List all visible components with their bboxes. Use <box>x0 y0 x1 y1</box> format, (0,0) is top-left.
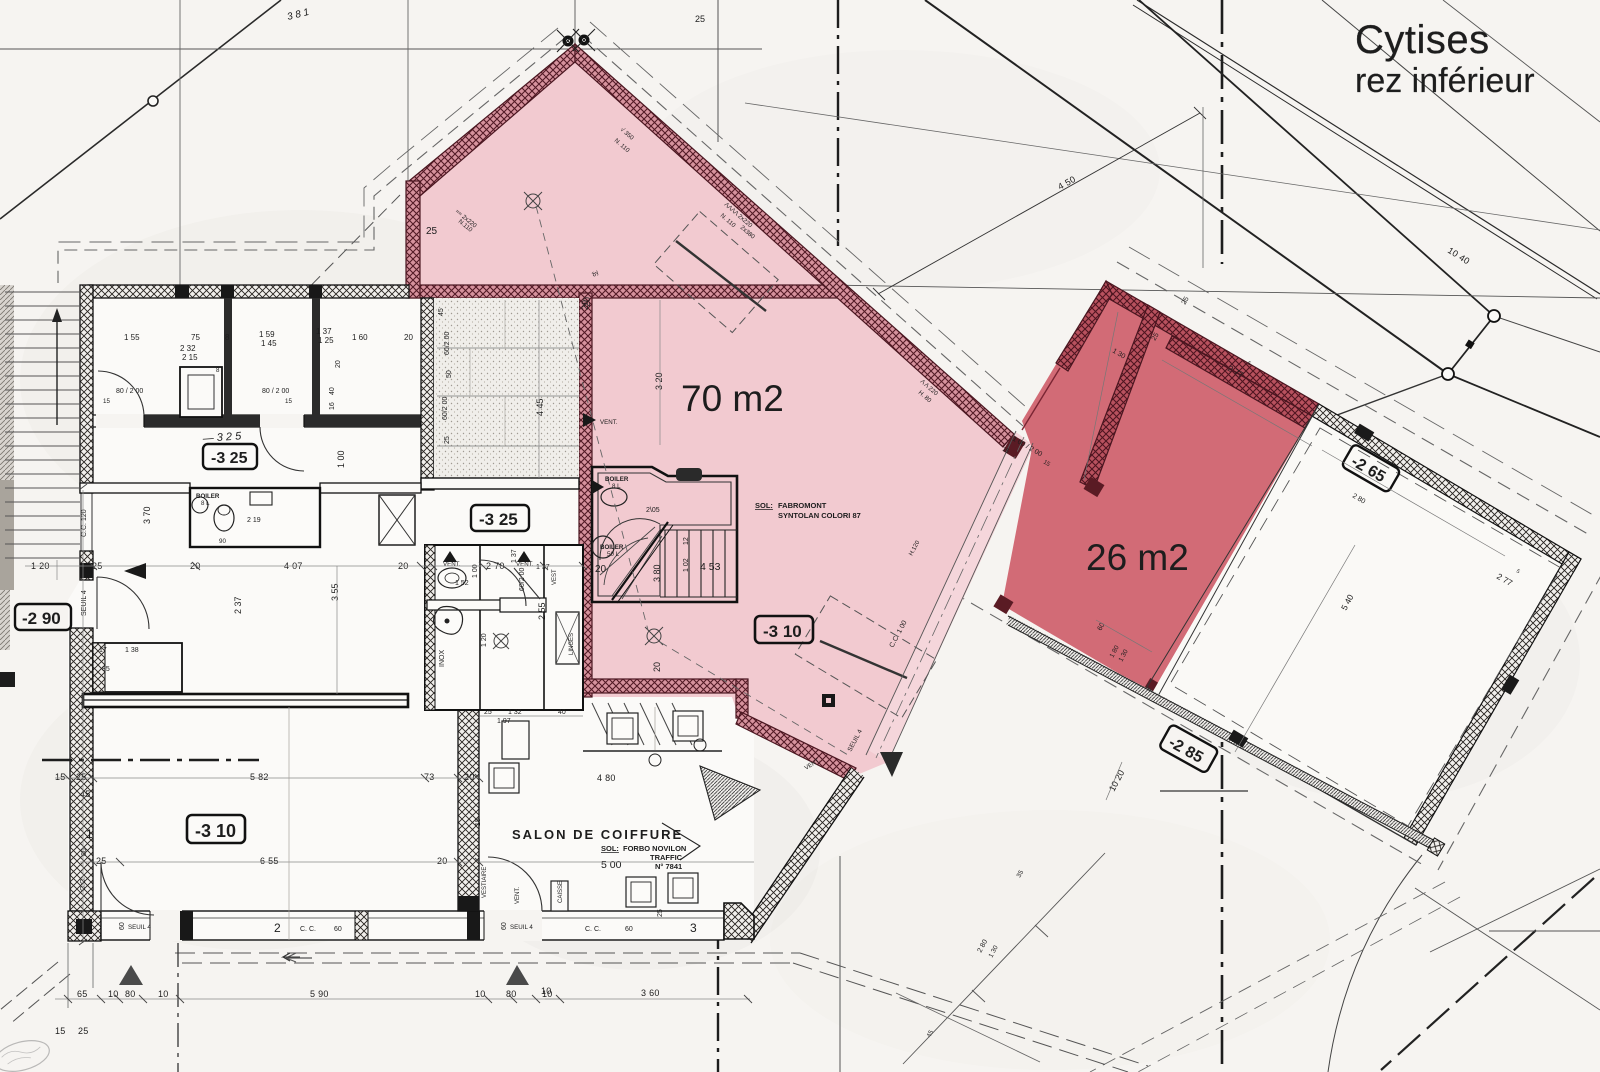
svg-text:VENT.: VENT. <box>443 561 461 568</box>
svg-text:10: 10 <box>541 986 552 996</box>
svg-text:20: 20 <box>595 564 607 575</box>
svg-text:1 20: 1 20 <box>481 633 488 647</box>
svg-text:N° 7841: N° 7841 <box>655 862 682 871</box>
svg-text:60/2 00: 60/2 00 <box>519 568 526 591</box>
svg-text:73: 73 <box>424 772 435 782</box>
svg-text:15: 15 <box>103 398 110 405</box>
svg-text:8: 8 <box>216 367 220 374</box>
svg-text:8 L: 8 L <box>201 500 210 507</box>
svg-text:25: 25 <box>444 436 451 444</box>
svg-text:20: 20 <box>464 772 475 782</box>
svg-text:45: 45 <box>438 308 445 316</box>
svg-text:45: 45 <box>80 789 91 799</box>
svg-text:SEUIL 4: SEUIL 4 <box>510 924 533 931</box>
svg-text:17: 17 <box>99 647 107 654</box>
svg-text:1 52: 1 52 <box>455 580 469 587</box>
svg-text:20: 20 <box>652 662 662 672</box>
svg-text:SEUIL 4: SEUIL 4 <box>81 590 88 616</box>
svg-text:1 00: 1 00 <box>336 450 346 468</box>
svg-text:VENT.: VENT. <box>600 419 618 426</box>
svg-text:50: 50 <box>446 370 453 378</box>
svg-text:16: 16 <box>329 402 336 410</box>
svg-text:VESTIAIRE: VESTIAIRE <box>482 867 488 898</box>
svg-text:‑3 10: ‑3 10 <box>195 821 236 841</box>
svg-text:26 m2: 26 m2 <box>1086 537 1189 578</box>
svg-text:‑3 25: ‑3 25 <box>211 450 248 467</box>
svg-text:1: 1 <box>86 827 93 841</box>
svg-text:60: 60 <box>119 922 126 930</box>
svg-text:4 80: 4 80 <box>597 773 616 783</box>
svg-text:4 53: 4 53 <box>700 561 721 573</box>
svg-text:C. C.: C. C. <box>300 926 316 933</box>
svg-text:Cytises: Cytises <box>1355 18 1490 62</box>
svg-text:FORBO NOVILON: FORBO NOVILON <box>623 844 686 853</box>
svg-text:60/2 00: 60/2 00 <box>442 397 449 420</box>
svg-text:5 82: 5 82 <box>250 772 269 782</box>
svg-text:6 55: 6 55 <box>260 856 279 866</box>
svg-text:SOL:: SOL: <box>755 501 773 510</box>
svg-text:75: 75 <box>191 333 200 342</box>
svg-text:2 15: 2 15 <box>182 353 198 362</box>
svg-text:1 60: 1 60 <box>352 333 368 342</box>
svg-text:15: 15 <box>55 772 66 782</box>
svg-text:C. C.: C. C. <box>585 926 601 933</box>
svg-text:50 L: 50 L <box>607 551 620 558</box>
svg-text:20: 20 <box>437 856 448 866</box>
svg-text:2 55: 2 55 <box>537 602 547 620</box>
svg-text:25: 25 <box>76 772 87 782</box>
svg-text:3 70: 3 70 <box>142 506 152 524</box>
svg-text:3 60: 3 60 <box>641 988 660 998</box>
svg-text:1 32: 1 32 <box>508 709 522 716</box>
svg-text:15: 15 <box>475 818 482 826</box>
svg-text:‑3 10: ‑3 10 <box>763 622 802 641</box>
svg-text:2: 2 <box>274 921 281 935</box>
svg-text:60: 60 <box>81 848 88 856</box>
svg-text:60: 60 <box>625 926 633 933</box>
svg-text:VENT.: VENT. <box>515 887 521 904</box>
svg-text:FABROMONT: FABROMONT <box>778 501 827 510</box>
svg-text:70 m2: 70 m2 <box>681 378 784 419</box>
svg-text:60/2 00: 60/2 00 <box>444 332 451 355</box>
svg-text:1 38: 1 38 <box>125 647 139 654</box>
svg-text:20: 20 <box>335 360 342 368</box>
svg-text:CAISSE: CAISSE <box>558 881 564 903</box>
svg-text:3 55: 3 55 <box>330 583 340 601</box>
svg-text:25: 25 <box>78 1026 89 1036</box>
svg-text:1 55: 1 55 <box>124 333 140 342</box>
svg-text:C.C.: C.C. <box>80 877 87 891</box>
svg-text:80: 80 <box>125 989 136 999</box>
svg-text:VENT.: VENT. <box>516 561 534 568</box>
svg-text:65: 65 <box>77 989 88 999</box>
svg-text:25: 25 <box>426 226 438 237</box>
svg-text:10: 10 <box>475 989 486 999</box>
svg-text:SOL:: SOL: <box>601 844 619 853</box>
svg-text:4 45: 4 45 <box>535 398 545 416</box>
svg-text:BOILER: BOILER <box>605 476 629 483</box>
svg-text:5 00: 5 00 <box>601 859 622 871</box>
svg-text:2 37: 2 37 <box>233 596 243 614</box>
svg-text:60: 60 <box>501 922 508 930</box>
svg-text:LINGES: LINGES <box>569 633 575 655</box>
svg-text:80 / 2 00: 80 / 2 00 <box>116 388 143 395</box>
svg-text:3 80: 3 80 <box>652 564 662 582</box>
svg-text:8 L: 8 L <box>612 483 621 490</box>
svg-text:10: 10 <box>158 989 169 999</box>
svg-text:25: 25 <box>96 856 107 866</box>
svg-text:20: 20 <box>404 333 413 342</box>
svg-text:1 97: 1 97 <box>497 718 511 725</box>
svg-text:80 / 2 00: 80 / 2 00 <box>262 388 289 395</box>
svg-text:rez inférieur: rez inférieur <box>1355 62 1535 100</box>
svg-text:‑3 25: ‑3 25 <box>479 510 518 529</box>
svg-text:2 32: 2 32 <box>180 344 196 353</box>
svg-text:2 19: 2 19 <box>247 517 261 524</box>
svg-text:40: 40 <box>329 387 336 395</box>
svg-text:BOILER: BOILER <box>196 493 220 500</box>
svg-text:3: 3 <box>690 921 697 935</box>
svg-text:SEUIL 4: SEUIL 4 <box>128 924 151 931</box>
svg-text:15: 15 <box>55 1026 66 1036</box>
svg-text:SALON DE COIFFURE: SALON DE COIFFURE <box>512 827 683 842</box>
svg-text:15: 15 <box>285 398 292 405</box>
svg-text:1 45: 1 45 <box>261 339 277 348</box>
svg-text:25: 25 <box>657 909 664 917</box>
svg-text:85: 85 <box>102 666 110 673</box>
svg-text:1 59: 1 59 <box>259 330 275 339</box>
svg-text:25: 25 <box>695 14 705 24</box>
svg-text:‑2 90: ‑2 90 <box>22 609 61 628</box>
svg-text:1 25: 1 25 <box>318 336 334 345</box>
svg-text:1 37: 1 37 <box>316 327 332 336</box>
svg-text:TRAFFIC: TRAFFIC <box>650 853 683 862</box>
svg-text:3 20: 3 20 <box>654 372 664 390</box>
svg-text:40: 40 <box>558 709 566 716</box>
svg-text:VEST: VEST <box>552 569 558 585</box>
svg-text:8: 8 <box>225 333 230 342</box>
svg-text:1 02: 1 02 <box>683 558 690 572</box>
svg-text:5 90: 5 90 <box>310 989 329 999</box>
svg-text:C.C. 120: C.C. 120 <box>81 509 88 537</box>
svg-text:2\05: 2\05 <box>646 507 660 514</box>
svg-text:SYNTOLAN COLORI 87: SYNTOLAN COLORI 87 <box>778 511 861 520</box>
svg-text:12: 12 <box>683 537 690 545</box>
svg-text:60: 60 <box>334 926 342 933</box>
svg-text:25: 25 <box>484 709 492 716</box>
svg-text:BOILER: BOILER <box>600 544 624 551</box>
svg-text:INOX: INOX <box>439 650 446 667</box>
svg-text:90: 90 <box>219 538 226 545</box>
svg-text:20: 20 <box>582 297 592 307</box>
